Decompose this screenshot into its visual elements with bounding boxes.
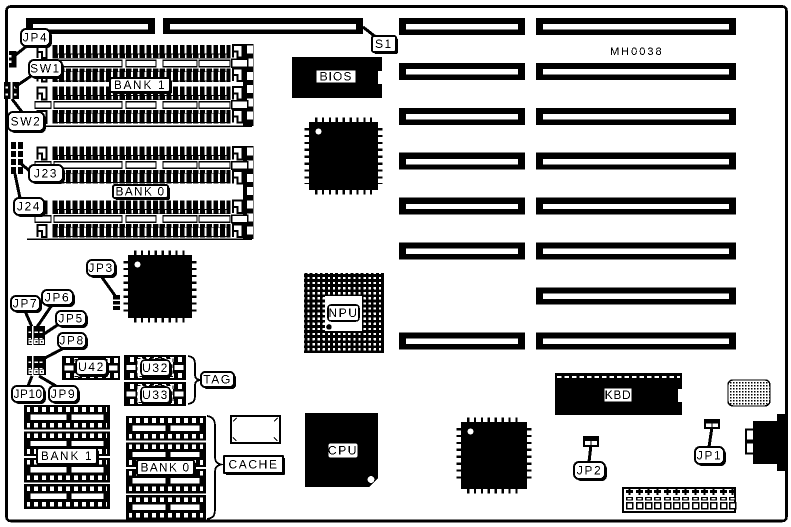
svg-text:BANK 0: BANK 0: [116, 185, 166, 199]
svg-text:JP4: JP4: [23, 31, 48, 45]
svg-text:NPU: NPU: [328, 306, 358, 320]
svg-text:U42: U42: [78, 360, 105, 374]
svg-text:U32: U32: [142, 361, 169, 375]
svg-text:SW1: SW1: [30, 62, 61, 76]
svg-text:BIOS: BIOS: [320, 70, 353, 84]
svg-text:JP6: JP6: [45, 291, 70, 305]
svg-text:JP9: JP9: [51, 387, 76, 401]
svg-text:CACHE: CACHE: [228, 458, 278, 472]
svg-text:JP3: JP3: [88, 261, 113, 275]
svg-text:MH0038: MH0038: [610, 46, 664, 58]
svg-text:SW2: SW2: [11, 115, 42, 129]
svg-text:CPU: CPU: [328, 444, 358, 458]
svg-text:JP7: JP7: [13, 297, 38, 311]
svg-text:J24: J24: [17, 200, 41, 214]
svg-text:BANK 0: BANK 0: [141, 461, 191, 475]
svg-text:BANK 1: BANK 1: [114, 78, 166, 92]
svg-text:JP2: JP2: [577, 464, 602, 478]
svg-text:JP8: JP8: [59, 334, 84, 348]
svg-text:BANK 1: BANK 1: [41, 449, 93, 463]
svg-text:KBD: KBD: [605, 388, 631, 402]
svg-text:JP10: JP10: [14, 387, 43, 401]
svg-text:TAG: TAG: [203, 373, 232, 387]
svg-text:S1: S1: [375, 37, 393, 51]
svg-text:J23: J23: [34, 167, 58, 181]
svg-text:JP5: JP5: [58, 312, 83, 326]
svg-text:JP1: JP1: [697, 449, 722, 463]
svg-text:U33: U33: [142, 388, 169, 402]
